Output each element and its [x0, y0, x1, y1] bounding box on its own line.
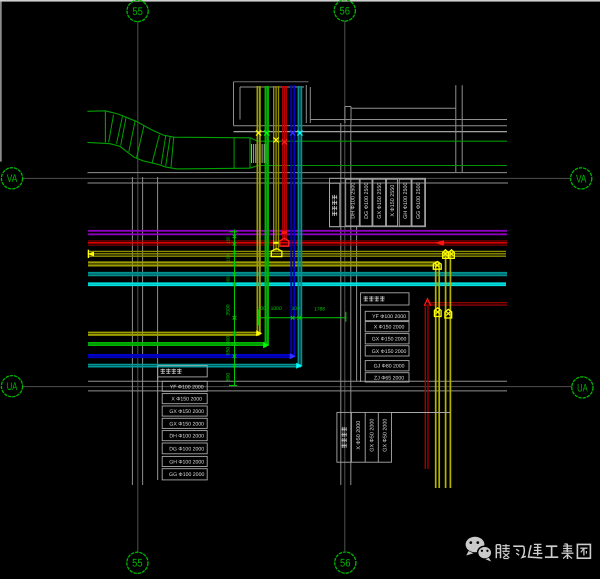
svg-text:1788: 1788: [314, 306, 325, 312]
svg-text:DG Φ100 2000: DG Φ100 2000: [169, 446, 204, 452]
svg-text:DH Φ100 2000: DH Φ100 2000: [169, 434, 204, 440]
svg-text:DH Φ100 2500: DH Φ100 2500: [350, 183, 356, 219]
svg-text:56: 56: [340, 5, 351, 17]
svg-text:GH Φ100 2500: GH Φ100 2500: [403, 183, 409, 219]
svg-text:UA: UA: [577, 382, 588, 394]
svg-text:GX Φ150 2000: GX Φ150 2000: [169, 409, 204, 415]
svg-text:YF Φ100 2000: YF Φ100 2000: [170, 384, 204, 390]
svg-text:X Φ50 2000: X Φ50 2000: [356, 421, 362, 450]
svg-text:55: 55: [132, 6, 143, 18]
svg-text:1000: 1000: [271, 306, 282, 312]
svg-text:GX Φ150 2000: GX Φ150 2000: [372, 337, 407, 343]
svg-text:56: 56: [340, 558, 351, 570]
svg-text:UA: UA: [7, 381, 18, 393]
svg-text:GX Φ50 2000: GX Φ50 2000: [383, 419, 389, 452]
svg-text:GX Φ150 2000: GX Φ150 2000: [169, 421, 204, 427]
svg-text:GH Φ100 2000: GH Φ100 2000: [169, 459, 204, 465]
svg-text:150: 150: [225, 254, 230, 262]
svg-text:YF Φ100 2000: YF Φ100 2000: [372, 314, 406, 320]
svg-text:GG Φ100 2500: GG Φ100 2500: [416, 182, 422, 219]
svg-text:X Φ150 2000: X Φ150 2000: [374, 325, 405, 331]
svg-text:800: 800: [225, 373, 231, 382]
svg-text:GX Φ150 2000: GX Φ150 2000: [372, 349, 407, 355]
svg-text:VA: VA: [7, 173, 18, 185]
svg-text:X Φ150 2550: X Φ150 2550: [390, 185, 396, 217]
svg-text:GX Φ150 2550: GX Φ150 2550: [377, 183, 383, 219]
svg-text:200: 200: [225, 276, 230, 284]
svg-text:55: 55: [132, 558, 143, 570]
svg-text:GG Φ100 2000: GG Φ100 2000: [169, 472, 204, 478]
svg-text:GX Φ50 2000: GX Φ50 2000: [370, 419, 376, 452]
svg-text:150: 150: [225, 236, 230, 244]
svg-text:800: 800: [225, 336, 231, 345]
svg-text:650: 650: [225, 347, 231, 356]
svg-text:ZJ Φ65 2000: ZJ Φ65 2000: [374, 375, 404, 381]
svg-text:DG Φ100 2500: DG Φ100 2500: [364, 183, 370, 219]
svg-text:GJ Φ80 2000: GJ Φ80 2000: [374, 364, 405, 370]
svg-text:3500: 3500: [225, 304, 231, 315]
svg-text:VA: VA: [576, 173, 587, 185]
svg-text:X Φ150 2000: X Φ150 2000: [171, 397, 202, 403]
svg-text:100: 100: [292, 306, 301, 312]
svg-text:100: 100: [258, 306, 267, 312]
